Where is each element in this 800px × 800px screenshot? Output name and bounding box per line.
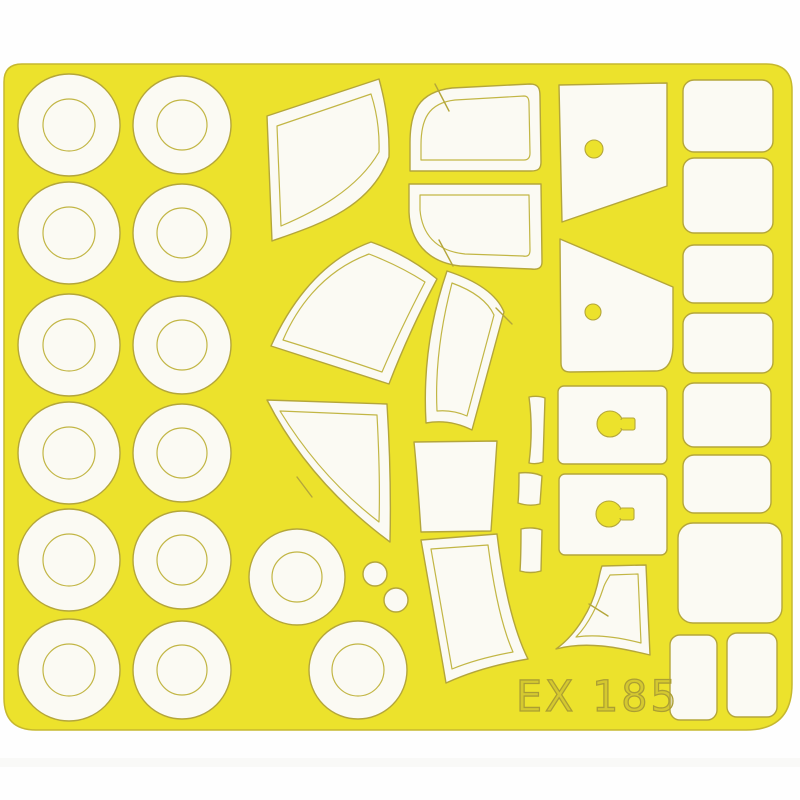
dot-mask	[363, 562, 387, 586]
round-mask-ring	[309, 621, 407, 719]
wheel-mask-ring	[18, 294, 120, 396]
wheel-mask-ring	[18, 619, 120, 721]
rectangle-mask	[678, 523, 782, 623]
background-shadow-band	[0, 758, 800, 767]
sliver-mask-3	[520, 528, 542, 573]
wheel-mask-ring	[18, 402, 120, 504]
wheel-mask-ring	[18, 182, 120, 284]
rectangle-mask	[727, 633, 777, 717]
wheel-mask-ring	[133, 296, 231, 394]
wheel-mask-ring	[133, 404, 231, 502]
rectangle-mask	[683, 158, 773, 233]
round-mask-ring	[249, 529, 345, 625]
canopy-mask-clamshell-upper	[410, 84, 541, 171]
wheel-mask-ring	[18, 74, 120, 176]
product-photo: EX 185	[0, 0, 800, 800]
wheel-mask-ring	[133, 511, 231, 609]
mask-sheet	[4, 64, 792, 730]
rectangle-mask	[683, 455, 771, 513]
wheel-mask-ring	[133, 621, 231, 719]
sliver-mask-1	[529, 396, 545, 463]
sliver-mask-2	[518, 473, 542, 505]
rectangle-mask	[683, 383, 771, 447]
rectangle-mask	[683, 245, 773, 303]
keyhole-join	[616, 510, 624, 518]
keyhole-join	[617, 420, 625, 428]
rectangle-mask	[683, 313, 773, 373]
dot-mask	[384, 588, 408, 612]
canopy-mask-quad-panel	[414, 441, 497, 532]
hole-cutout	[585, 304, 601, 320]
wheel-mask-ring	[133, 76, 231, 174]
rectangle-mask	[683, 80, 773, 152]
product-code: EX 185	[516, 672, 689, 722]
wheel-mask-ring	[133, 184, 231, 282]
hole-cutout	[585, 140, 603, 158]
wheel-mask-ring	[18, 509, 120, 611]
